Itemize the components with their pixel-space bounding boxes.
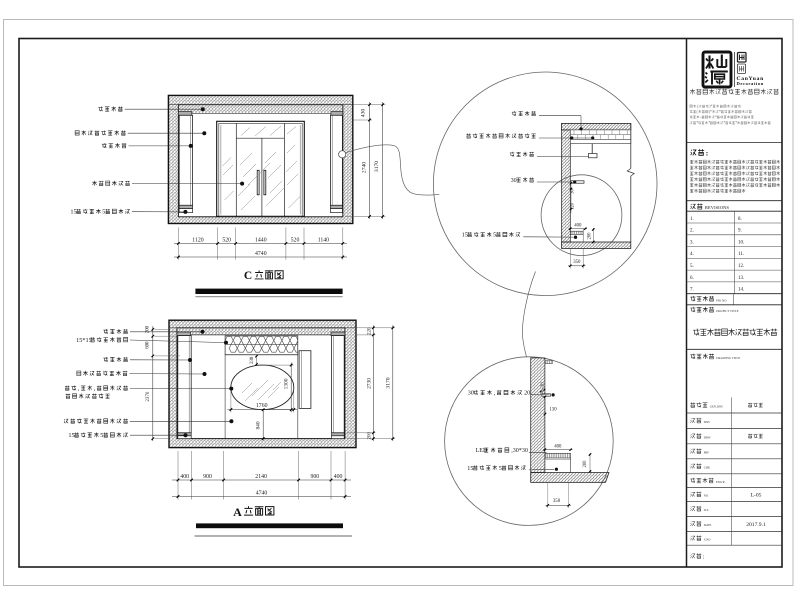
svg-text:S.NO: S.NO (704, 538, 712, 542)
svg-text:120: 120 (571, 202, 576, 210)
svg-text:200: 200 (587, 232, 592, 240)
svg-text:8.: 8. (738, 217, 742, 222)
svg-text:11.: 11. (738, 252, 744, 257)
svg-text:5: 5 (499, 466, 502, 472)
svg-text:1.: 1. (690, 217, 694, 222)
svg-text:DSN: DSN (704, 420, 711, 424)
svg-text:2017.9.1: 2017.9.1 (746, 522, 766, 528)
svg-text:9.: 9. (738, 229, 742, 234)
svg-text:Decoration: Decoration (737, 81, 764, 86)
svg-text:1300: 1300 (284, 378, 290, 389)
svg-text:2740: 2740 (361, 162, 367, 173)
svg-text:13.: 13. (738, 276, 744, 281)
svg-text:20: 20 (540, 382, 545, 387)
svg-text:REVISIONS: REVISIONS (705, 205, 729, 210)
svg-text:A: A (233, 505, 242, 519)
svg-text:4.: 4. (690, 252, 694, 257)
svg-text:200: 200 (367, 431, 372, 439)
svg-text:1440: 1440 (255, 237, 267, 243)
svg-text:3170: 3170 (374, 161, 380, 172)
svg-text:2140: 2140 (255, 474, 267, 480)
svg-text:400: 400 (574, 224, 582, 229)
svg-text:130: 130 (549, 407, 557, 412)
svg-text:430: 430 (361, 109, 367, 118)
svg-text:600: 600 (145, 341, 150, 349)
svg-text:4740: 4740 (255, 251, 267, 257)
svg-text:15: 15 (68, 432, 74, 439)
svg-text:PRF: PRF (704, 451, 710, 455)
svg-text:400: 400 (180, 474, 189, 480)
svg-text:4740: 4740 (256, 490, 268, 496)
svg-text:1140: 1140 (318, 237, 329, 243)
svg-text:1760: 1760 (256, 403, 268, 409)
svg-text:6.: 6. (690, 276, 694, 281)
svg-text:5: 5 (102, 209, 105, 216)
svg-text:,30*30: ,30*30 (511, 448, 528, 454)
svg-text:C: C (244, 270, 252, 282)
svg-text:400: 400 (554, 445, 562, 450)
svg-text:5: 5 (493, 233, 496, 239)
svg-text:12.: 12. (738, 264, 744, 269)
svg-text:15: 15 (467, 466, 473, 472)
svg-text:L-05: L-05 (751, 493, 762, 499)
svg-text:30: 30 (511, 178, 517, 184)
svg-text:*: * (715, 115, 717, 119)
svg-text:CHK: CHK (704, 466, 711, 470)
svg-text:PRJ NO: PRJ NO (716, 298, 727, 302)
svg-text:200: 200 (583, 460, 588, 468)
svg-text:2.: 2. (690, 229, 694, 234)
svg-text:900: 900 (203, 474, 212, 480)
svg-text:840: 840 (256, 421, 262, 429)
svg-text:350: 350 (573, 260, 581, 265)
svg-text:SCL: SCL (704, 508, 710, 512)
svg-text:ENG'R: ENG'R (716, 480, 725, 484)
svg-text:520: 520 (291, 237, 300, 243)
svg-text:15*15: 15*15 (76, 337, 92, 344)
svg-text:*: * (708, 121, 710, 125)
svg-text:230: 230 (250, 356, 255, 364)
svg-text:10.: 10. (738, 240, 744, 245)
svg-text:2370: 2370 (146, 391, 151, 402)
svg-text:*: * (723, 121, 725, 125)
svg-text:3170: 3170 (385, 377, 391, 388)
svg-text:14.: 14. (738, 288, 744, 293)
svg-text:30: 30 (571, 189, 576, 194)
svg-text:5.: 5. (690, 264, 694, 269)
svg-text:*: * (696, 121, 698, 125)
svg-text:30: 30 (468, 391, 474, 397)
svg-text::: : (706, 149, 709, 158)
svg-text:)*: )* (709, 105, 712, 109)
svg-text:DATE: DATE (704, 523, 712, 527)
svg-text:220: 220 (367, 327, 372, 335)
svg-text:7.: 7. (690, 288, 694, 293)
svg-text:15: 15 (462, 233, 468, 239)
svg-text:1120: 1120 (192, 237, 203, 243)
svg-text:5: 5 (100, 432, 103, 439)
svg-text:DRW: DRW (704, 435, 711, 439)
svg-text:)*: )* (709, 110, 712, 114)
svg-text:2730: 2730 (366, 378, 372, 389)
svg-text:400: 400 (334, 474, 343, 480)
svg-text:*: * (719, 110, 721, 114)
svg-text:20: 20 (524, 391, 530, 397)
svg-text:15: 15 (70, 209, 76, 216)
svg-text:DRAWING TITLE: DRAWING TITLE (716, 356, 740, 360)
svg-text:350: 350 (553, 499, 561, 504)
svg-text:520: 520 (222, 237, 231, 243)
svg-text:GEN.DSN: GEN.DSN (710, 404, 724, 408)
svg-text:900: 900 (310, 474, 319, 480)
svg-text:*: * (735, 121, 737, 125)
svg-text:3.: 3. (690, 240, 694, 245)
svg-text:PROJECT TITLE: PROJECT TITLE (716, 309, 738, 313)
